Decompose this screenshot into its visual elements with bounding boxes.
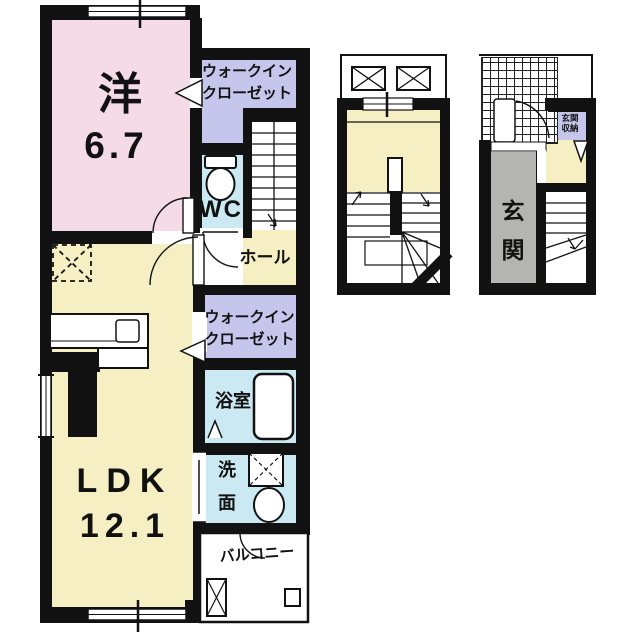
entrance-staircase [546, 203, 586, 262]
kitchen-partition-wall [68, 372, 97, 437]
wall [185, 600, 200, 623]
entrance-storage-label-line2: 収納 [551, 124, 589, 134]
stairwell-room-3f [347, 110, 440, 192]
wall [193, 443, 310, 455]
ldk-label: LDK [55, 464, 195, 500]
main-staircase [252, 122, 296, 230]
walkin-closet-upper-label-line2: クローゼット [198, 86, 296, 102]
hall-label: ホール [233, 249, 297, 267]
washroom-label-char2: 面 [218, 489, 236, 515]
wall [440, 98, 450, 295]
walkin-closet-upper-lower-part [200, 110, 243, 143]
bathroom-label: 浴室 [207, 392, 259, 411]
walkin-closet-middle [203, 295, 296, 358]
western-room-area: 6.7 [56, 127, 176, 166]
wall [546, 183, 586, 192]
entrance-label-char2: 関 [502, 231, 525, 265]
walkin-closet-upper-label-line1: ウォークイン [198, 64, 296, 80]
walkin-closet-middle-label-line2: クローゼット [203, 332, 296, 348]
wall [190, 143, 247, 155]
toilet-label: WC [197, 197, 245, 222]
wall [337, 283, 450, 295]
shoe-shelf [548, 104, 592, 112]
wall [479, 283, 596, 295]
wall [40, 607, 200, 623]
stair-divider-wall [390, 190, 402, 235]
upper-balcony [341, 55, 446, 99]
washroom-label-char1: 洗 [218, 456, 236, 482]
wall [193, 285, 310, 295]
wall [337, 98, 450, 110]
wall [40, 231, 152, 244]
wall [40, 5, 200, 20]
washroom-label: 洗 面 [214, 456, 240, 515]
wall [337, 98, 347, 295]
entrance-label-char1: 玄 [502, 192, 525, 226]
wall [479, 140, 491, 295]
entrance-label: 玄 関 [499, 192, 527, 265]
wall [190, 48, 310, 60]
wall [193, 358, 310, 370]
western-room-label: 洋 [75, 72, 165, 118]
wall [536, 148, 546, 283]
floorplan-canvas: 洋 6.7 ウォークイン クローゼット WC ホール ウォークイン クローゼット… [0, 0, 640, 640]
balcony-label: バルコニー [208, 544, 307, 567]
ldk-area: 12.1 [50, 509, 200, 545]
entrance-upper-landing [546, 140, 586, 183]
wall [243, 108, 310, 122]
wall [193, 523, 310, 535]
kitchen-partition-wall [50, 352, 100, 372]
walkin-closet-middle-label-line1: ウォークイン [203, 310, 296, 326]
